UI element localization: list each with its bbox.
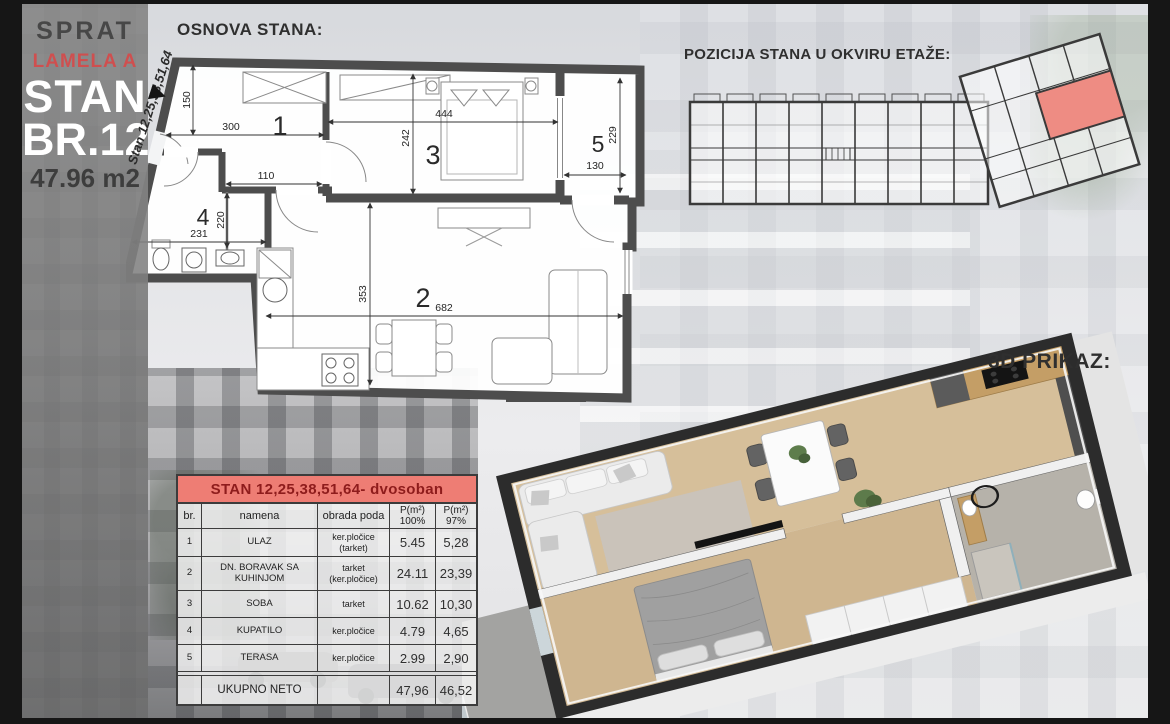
cell-p100: 10.62 xyxy=(390,590,436,617)
room-label-5: 5 xyxy=(592,131,605,157)
dim-353: 353 xyxy=(357,285,369,303)
cell-br: 4 xyxy=(178,617,202,644)
cell-p97: 2,90 xyxy=(436,644,476,671)
cell-pod: tarket(ker.pločice) xyxy=(318,556,390,590)
namena-line: KUHINJOM xyxy=(235,574,285,585)
cell-namena: ULAZ xyxy=(202,528,318,556)
cell-namena: KUPATILO xyxy=(202,617,318,644)
total-p97: 46,52 xyxy=(436,675,476,704)
namena-line: SOBA xyxy=(246,599,272,610)
sidebar-panel: SPRAT LAMELA A STAN BR.12 47.96 m2 xyxy=(22,4,148,718)
room-label-2: 2 xyxy=(415,283,430,313)
floor-label: SPRAT xyxy=(22,17,148,46)
cell-br: 2 xyxy=(178,556,202,590)
cell-p97: 5,28 xyxy=(436,528,476,556)
cell-p100: 2.99 xyxy=(390,644,436,671)
col-header-p97: P(m²) 97% xyxy=(436,504,476,528)
frame-border xyxy=(0,0,1170,4)
total-label: UKUPNO NETO xyxy=(202,675,318,704)
p97-unit: P(m²) xyxy=(444,505,469,516)
cell-p100: 4.79 xyxy=(390,617,436,644)
cell-namena: SOBA xyxy=(202,590,318,617)
pod-line: (ker.pločice) xyxy=(329,574,378,584)
dim-444: 444 xyxy=(435,108,453,120)
tv-stand xyxy=(438,208,530,228)
position-heading: POZICIJA STANA U OKVIRU ETAŽE: xyxy=(684,46,951,63)
cell-pod: ker.pločice xyxy=(318,617,390,644)
cell-pod: ker.pločice(tarket) xyxy=(318,528,390,556)
total-p100: 47,96 xyxy=(390,675,436,704)
cell-br: 1 xyxy=(178,528,202,556)
area-table-title: STAN 12,25,38,51,64- dvosoban xyxy=(178,476,476,504)
lamela-label: LAMELA A xyxy=(22,51,148,73)
apartment-label: STAN xyxy=(22,76,148,117)
col-header-p100: P(m²) 100% xyxy=(390,504,436,528)
floorplan-heading: OSNOVA STANA: xyxy=(177,20,323,40)
room-label-4: 4 xyxy=(197,204,210,230)
table-row: 5 TERASA ker.pločice 2.99 2,90 xyxy=(178,644,476,671)
dim-229: 229 xyxy=(607,126,619,144)
frame-border xyxy=(1148,0,1170,724)
table-row: 1 ULAZ ker.pločice(tarket) 5.45 5,28 xyxy=(178,528,476,556)
col-header-pod: obrada poda xyxy=(318,504,390,528)
cell-p100: 24.11 xyxy=(390,556,436,590)
namena-line: DN. BORAVAK SA xyxy=(220,563,299,574)
cell-p100: 5.45 xyxy=(390,528,436,556)
namena-line: KUPATILO xyxy=(237,626,283,637)
cell-p97: 10,30 xyxy=(436,590,476,617)
dim-110: 110 xyxy=(258,170,275,182)
cell-pod: tarket xyxy=(318,590,390,617)
frame-border xyxy=(0,718,1170,724)
cell-pod-empty xyxy=(318,675,390,704)
brochure-page: SPRAT LAMELA A STAN BR.12 47.96 m2 Stan … xyxy=(0,0,1170,724)
room-label-3: 3 xyxy=(425,140,440,170)
cell-br: 3 xyxy=(178,590,202,617)
table-total-row: UKUPNO NETO 47,96 46,52 xyxy=(178,675,476,704)
table-header-row: br. namena obrada poda P(m²) 100% P(m²) … xyxy=(178,504,476,528)
namena-line: TERASA xyxy=(240,653,278,664)
cell-p97: 23,39 xyxy=(436,556,476,590)
table-row: 2 DN. BORAVAK SAKUHINJOM tarket(ker.ploč… xyxy=(178,556,476,590)
pod-line: tarket xyxy=(342,599,365,609)
room-label-1: 1 xyxy=(272,111,287,141)
dim-220: 220 xyxy=(215,211,227,229)
dim-300: 300 xyxy=(222,121,240,133)
area-table: STAN 12,25,38,51,64- dvosoban br. namena… xyxy=(176,474,478,706)
toilet xyxy=(152,240,170,248)
frame-border xyxy=(0,0,22,724)
cell-br: 5 xyxy=(178,644,202,671)
cell-br-empty xyxy=(178,675,202,704)
table-row: 4 KUPATILO ker.pločice 4.79 4,65 xyxy=(178,617,476,644)
dim-242: 242 xyxy=(400,129,412,147)
p97-pct: 97% xyxy=(446,516,466,527)
cell-p97: 4,65 xyxy=(436,617,476,644)
pod-line: (tarket) xyxy=(339,543,368,553)
cell-pod: ker.pločice xyxy=(318,644,390,671)
pod-line: ker.pločice xyxy=(332,532,375,542)
dim-150: 150 xyxy=(181,91,193,109)
p100-unit: P(m²) xyxy=(400,505,425,516)
dining-table xyxy=(392,320,436,376)
apartment-3d-view xyxy=(462,328,1154,724)
building-straight-wing xyxy=(690,94,988,204)
cell-namena: TERASA xyxy=(202,644,318,671)
dim-130: 130 xyxy=(586,160,604,172)
col-header-br: br. xyxy=(178,504,202,528)
pod-line: tarket xyxy=(342,563,365,573)
dim-682: 682 xyxy=(435,302,453,314)
table-row: 3 SOBA tarket 10.62 10,30 xyxy=(178,590,476,617)
namena-line: ULAZ xyxy=(247,537,271,548)
cell-namena: DN. BORAVAK SAKUHINJOM xyxy=(202,556,318,590)
col-header-namena: namena xyxy=(202,504,318,528)
pod-line: ker.pločice xyxy=(332,653,375,663)
view3d-heading: 3D PRIKAZ: xyxy=(988,350,1111,374)
p100-pct: 100% xyxy=(400,516,426,527)
pod-line: ker.pločice xyxy=(332,626,375,636)
